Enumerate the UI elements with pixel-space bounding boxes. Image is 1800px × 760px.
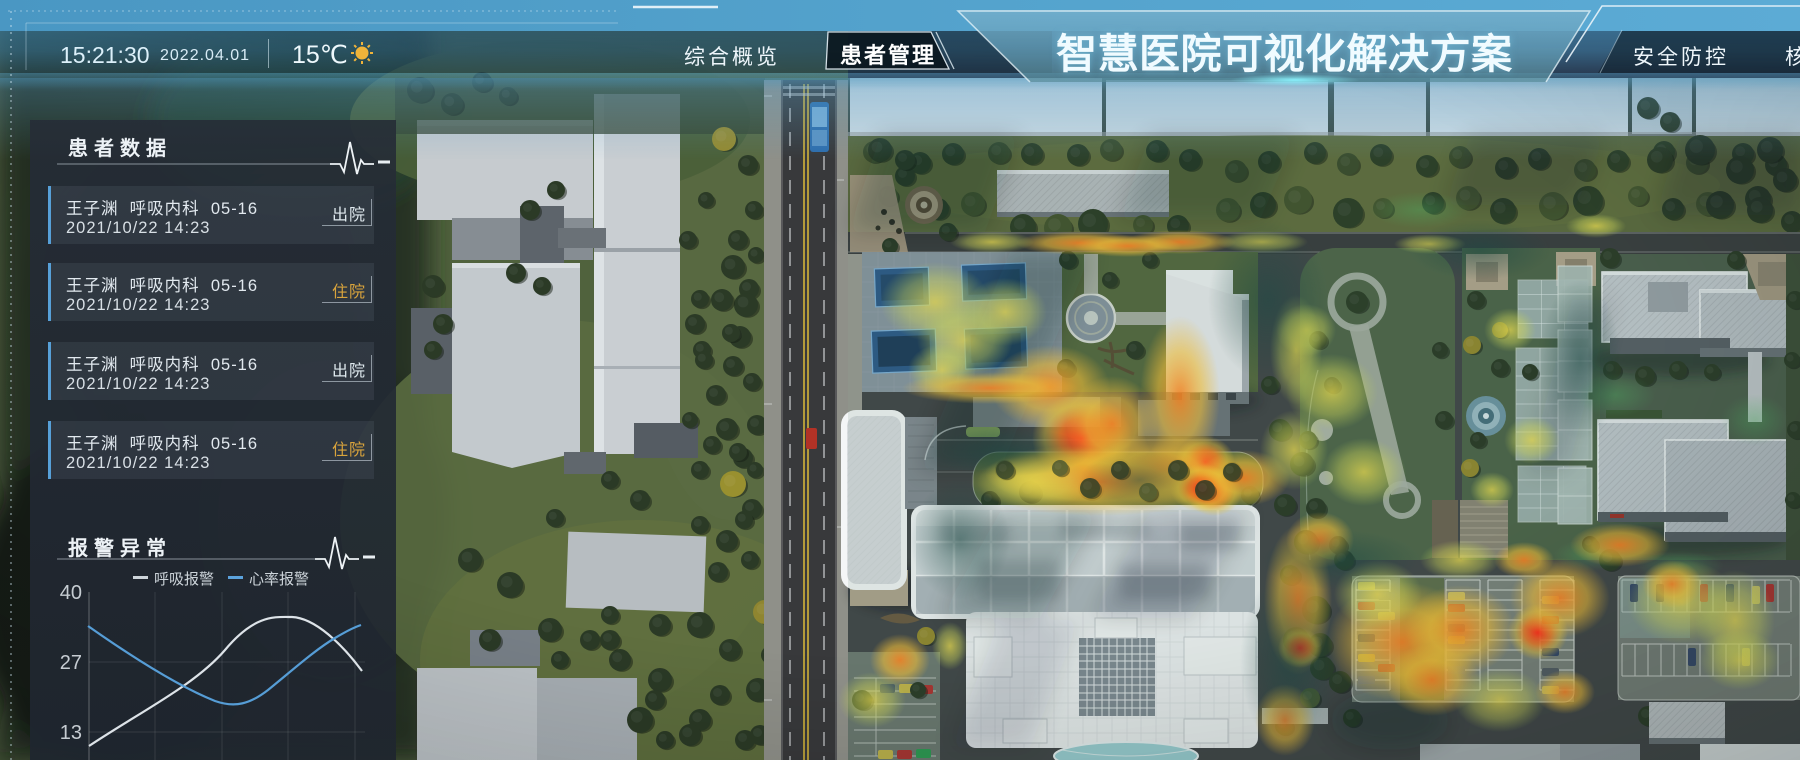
svg-text:13: 13 <box>60 722 82 744</box>
svg-text:40: 40 <box>60 582 82 604</box>
svg-text:27: 27 <box>60 652 82 674</box>
